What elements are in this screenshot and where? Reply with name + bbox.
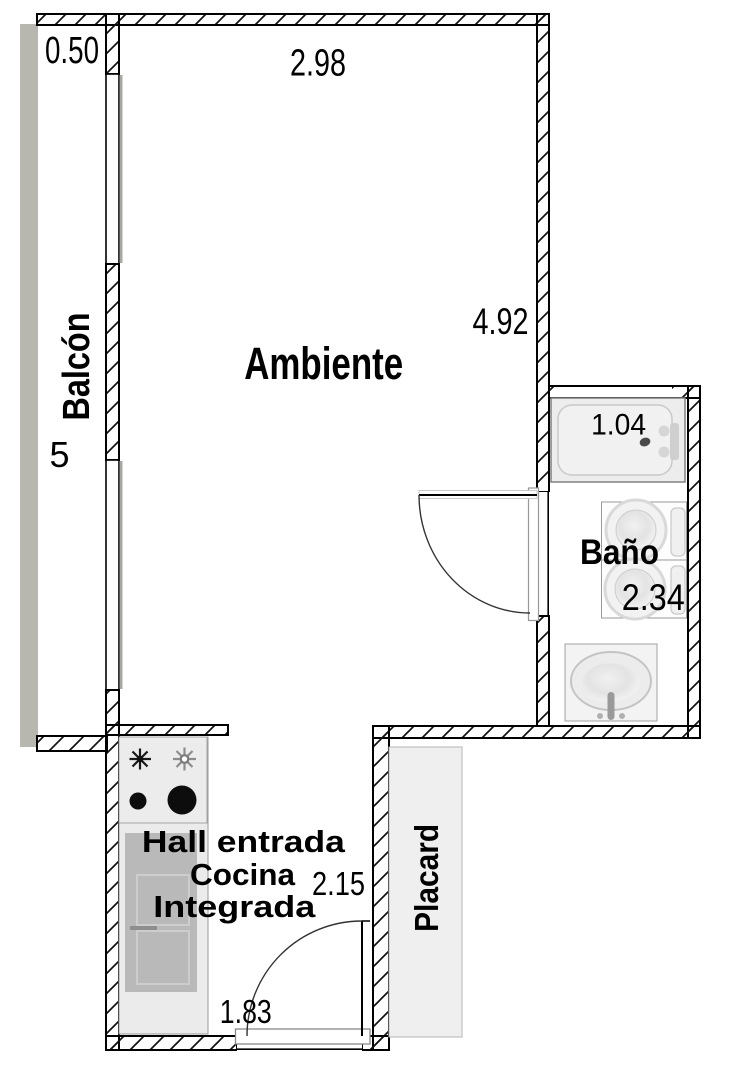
- svg-text:4.92: 4.92: [473, 301, 529, 342]
- svg-text:Balcón: Balcón: [56, 313, 98, 421]
- svg-text:Ambiente: Ambiente: [244, 338, 403, 389]
- svg-text:Placard: Placard: [408, 824, 445, 932]
- svg-text:Hall entrada: Hall entrada: [142, 824, 346, 859]
- svg-text:Baño: Baño: [580, 533, 659, 572]
- svg-text:2.34: 2.34: [622, 577, 685, 618]
- svg-text:1.04: 1.04: [591, 409, 646, 442]
- svg-text:0.50: 0.50: [45, 30, 99, 72]
- svg-text:5: 5: [49, 434, 69, 475]
- svg-text:Integrada: Integrada: [153, 889, 316, 924]
- svg-text:1.83: 1.83: [220, 993, 272, 1030]
- svg-text:2.98: 2.98: [290, 43, 346, 85]
- svg-text:2.15: 2.15: [312, 865, 365, 902]
- svg-text:Cocina: Cocina: [190, 857, 296, 892]
